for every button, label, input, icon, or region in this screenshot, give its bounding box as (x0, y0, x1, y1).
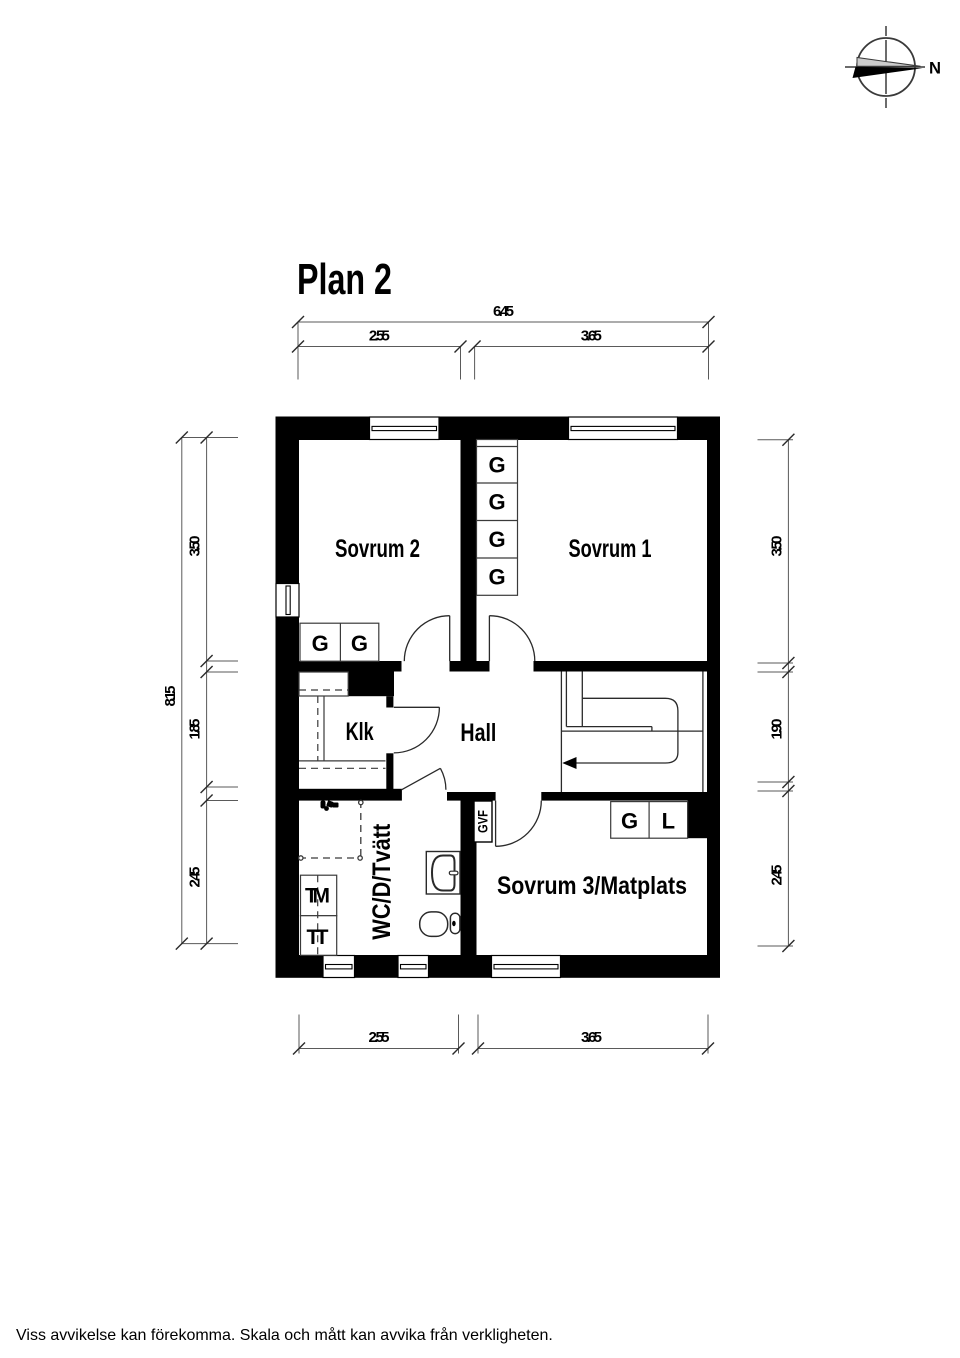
svg-text:GVF: GVF (475, 810, 491, 833)
svg-text:Sovrum 1: Sovrum 1 (569, 535, 652, 563)
svg-text:3.50: 3.50 (769, 536, 786, 557)
svg-text:TM: TM (305, 885, 330, 908)
svg-text:Sovrum 2: Sovrum 2 (335, 535, 420, 563)
svg-text:Hall: Hall (460, 719, 496, 747)
svg-text:Plan 2: Plan 2 (297, 255, 392, 304)
svg-text:3.50: 3.50 (187, 536, 204, 557)
svg-text:G: G (488, 453, 505, 478)
svg-text:G: G (488, 527, 505, 552)
svg-text:G: G (621, 808, 638, 833)
svg-text:G: G (488, 490, 505, 515)
svg-text:L: L (662, 808, 675, 833)
svg-text:6.45: 6.45 (493, 303, 514, 320)
svg-text:2.45: 2.45 (769, 865, 786, 886)
svg-text:G: G (488, 565, 505, 590)
svg-text:Klk: Klk (346, 718, 374, 746)
svg-text:2.55: 2.55 (369, 328, 390, 345)
svg-text:2.55: 2.55 (369, 1029, 390, 1046)
svg-text:2.45: 2.45 (187, 867, 204, 888)
svg-text:G: G (312, 631, 329, 656)
svg-text:Viss avvikelse kan förekomma.: Viss avvikelse kan förekomma. Skala och … (16, 1326, 553, 1344)
svg-text:1.85: 1.85 (187, 719, 204, 740)
svg-text:3.65: 3.65 (581, 328, 602, 345)
svg-text:3.65: 3.65 (581, 1029, 602, 1046)
svg-text:8.15: 8.15 (162, 686, 179, 707)
svg-text:WC/D/Tvätt: WC/D/Tvätt (368, 823, 396, 940)
svg-text:TT: TT (307, 926, 329, 949)
svg-text:N: N (929, 59, 941, 78)
svg-text:Sovrum 3/Matplats: Sovrum 3/Matplats (497, 872, 687, 900)
svg-text:1.90: 1.90 (769, 719, 786, 740)
svg-text:G: G (351, 631, 368, 656)
